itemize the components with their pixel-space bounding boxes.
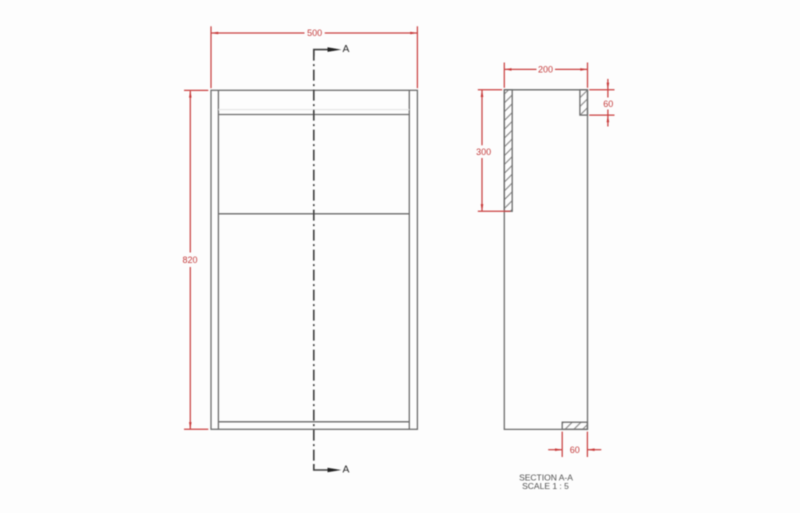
svg-text:820: 820 (182, 255, 197, 265)
svg-text:60: 60 (603, 99, 613, 109)
svg-text:A: A (342, 44, 349, 55)
svg-text:200: 200 (538, 64, 553, 74)
svg-text:SCALE 1 : 5: SCALE 1 : 5 (522, 481, 569, 491)
svg-text:300: 300 (476, 147, 491, 157)
svg-text:A: A (342, 465, 349, 476)
svg-text:500: 500 (307, 28, 322, 38)
svg-text:60: 60 (570, 445, 580, 455)
